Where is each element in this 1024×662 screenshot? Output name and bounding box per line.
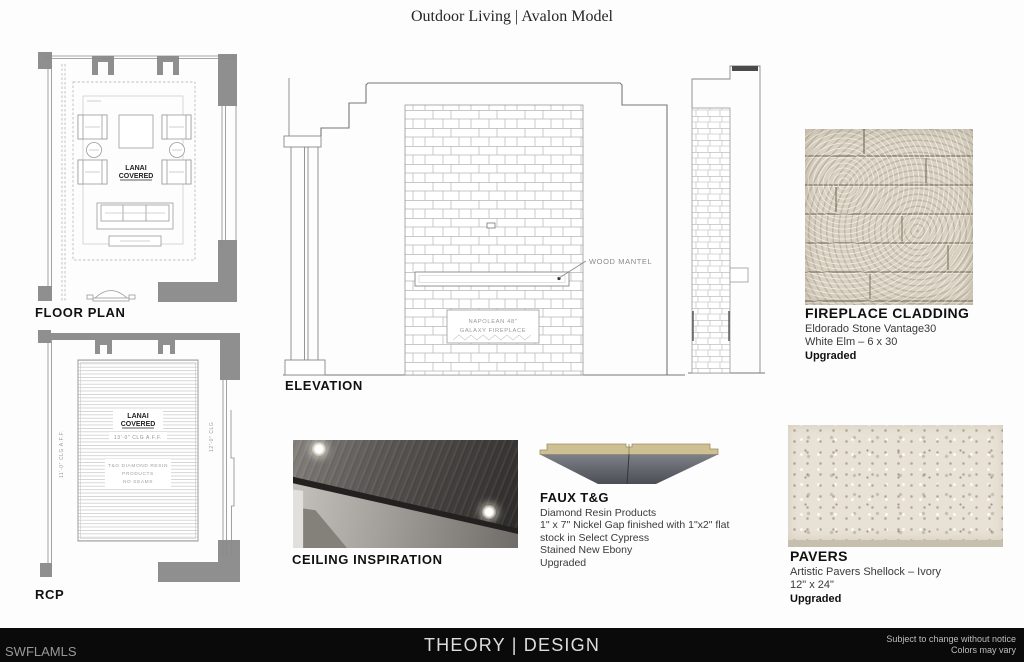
faux-tg-caption: FAUX T&G Diamond Resin Products 1" x 7" …: [540, 492, 750, 569]
elevation-label: ELEVATION: [285, 378, 363, 393]
pavers-caption: PAVERS Artistic Pavers Shellock – Ivory …: [790, 550, 1000, 606]
mantel-callout-text: WOOD MANTEL: [589, 257, 652, 266]
floor-plan-drawing: LANAI COVERED: [35, 46, 245, 302]
rcp-room-label-2: COVERED: [121, 421, 156, 428]
elevation-drawing: WOOD MANTEL NAPOLEAN 48" GALAXY FIREPLAC…: [283, 56, 765, 382]
elevation-fireplace: NAPOLEAN 48" GALAXY FIREPLACE: [447, 310, 539, 343]
faux-tg-profile: [538, 437, 720, 490]
recessed-light-icon: [311, 441, 327, 457]
fireplace-cladding-sample: [805, 129, 973, 305]
rcp-drawing: LANAI COVERED 13'-0" CLG A.F.F. T&G DIAM…: [35, 326, 245, 584]
pavers-sample: [788, 425, 1003, 547]
fireplace-cladding-line1: Eldorado Stone Vantage30: [805, 323, 995, 337]
rcp-note-2: PRODUCTS: [122, 471, 154, 477]
faux-tg-title: FAUX T&G: [540, 492, 750, 505]
fireplace-cladding-upgraded: Upgraded: [805, 350, 995, 364]
rcp-note-3: NO SEAMS: [123, 479, 153, 485]
design-board: Outdoor Living | Avalon Model: [0, 0, 1024, 662]
page-title: Outdoor Living | Avalon Model: [0, 8, 1024, 26]
footer-disclaimer: Subject to change without notice Colors …: [886, 634, 1016, 656]
fireplace-cladding-line2: White Elm – 6 x 30: [805, 336, 995, 350]
elevation-left-column: [284, 78, 325, 375]
fireplace-cladding-caption: FIREPLACE CLADDING Eldorado Stone Vantag…: [805, 307, 995, 363]
ceiling-inspiration-label: CEILING INSPIRATION: [292, 552, 443, 567]
rcp-room-label-1: LANAI: [127, 413, 148, 420]
fireplace-label-1: NAPOLEAN 48": [469, 319, 518, 325]
floor-plan-label: FLOOR PLAN: [35, 305, 126, 320]
rcp-right-height: 12'-0" CLG: [209, 422, 215, 452]
rcp-label: RCP: [35, 587, 64, 602]
elevation-side-column: [692, 66, 760, 373]
pavers-upgraded: Upgraded: [790, 593, 1000, 607]
ceiling-inspiration-photo: [293, 440, 518, 548]
floorplan-room-label-1: LANAI: [125, 165, 146, 172]
footer-brand: THEORY | DESIGN: [0, 635, 1024, 656]
faux-tg-line3: stock in Select Cypress: [540, 532, 750, 545]
faux-tg-line2: 1" x 7" Nickel Gap finished with 1"x2" f…: [540, 519, 750, 532]
floor-plan-furniture: [78, 115, 191, 301]
recessed-light-icon: [481, 504, 497, 520]
faux-tg-upgraded: Upgraded: [540, 557, 750, 570]
rcp-ceiling-planks: [78, 360, 198, 541]
fireplace-cladding-title: FIREPLACE CLADDING: [805, 307, 995, 321]
pavers-title: PAVERS: [790, 550, 1000, 564]
pavers-line1: Artistic Pavers Shellock – Ivory: [790, 566, 1000, 580]
footer-bar: SWFLAMLS THEORY | DESIGN Subject to chan…: [0, 628, 1024, 662]
rcp-note-1: T&G DIAMOND RESIN: [108, 463, 168, 469]
pavers-line2: 12" x 24": [790, 579, 1000, 593]
faux-tg-line1: Diamond Resin Products: [540, 507, 750, 520]
rcp-ceiling-height: 13'-0" CLG A.F.F.: [114, 435, 162, 441]
floorplan-room-label-2: COVERED: [119, 173, 154, 180]
footer-disclaimer-line2: Colors may vary: [886, 645, 1016, 656]
faux-tg-line4: Stained New Ebony: [540, 544, 750, 557]
fireplace-label-2: GALAXY FIREPLACE: [460, 328, 527, 334]
rcp-left-height: 11'-0" CLG A.F.F.: [59, 430, 65, 478]
footer-disclaimer-line1: Subject to change without notice: [886, 634, 1016, 645]
